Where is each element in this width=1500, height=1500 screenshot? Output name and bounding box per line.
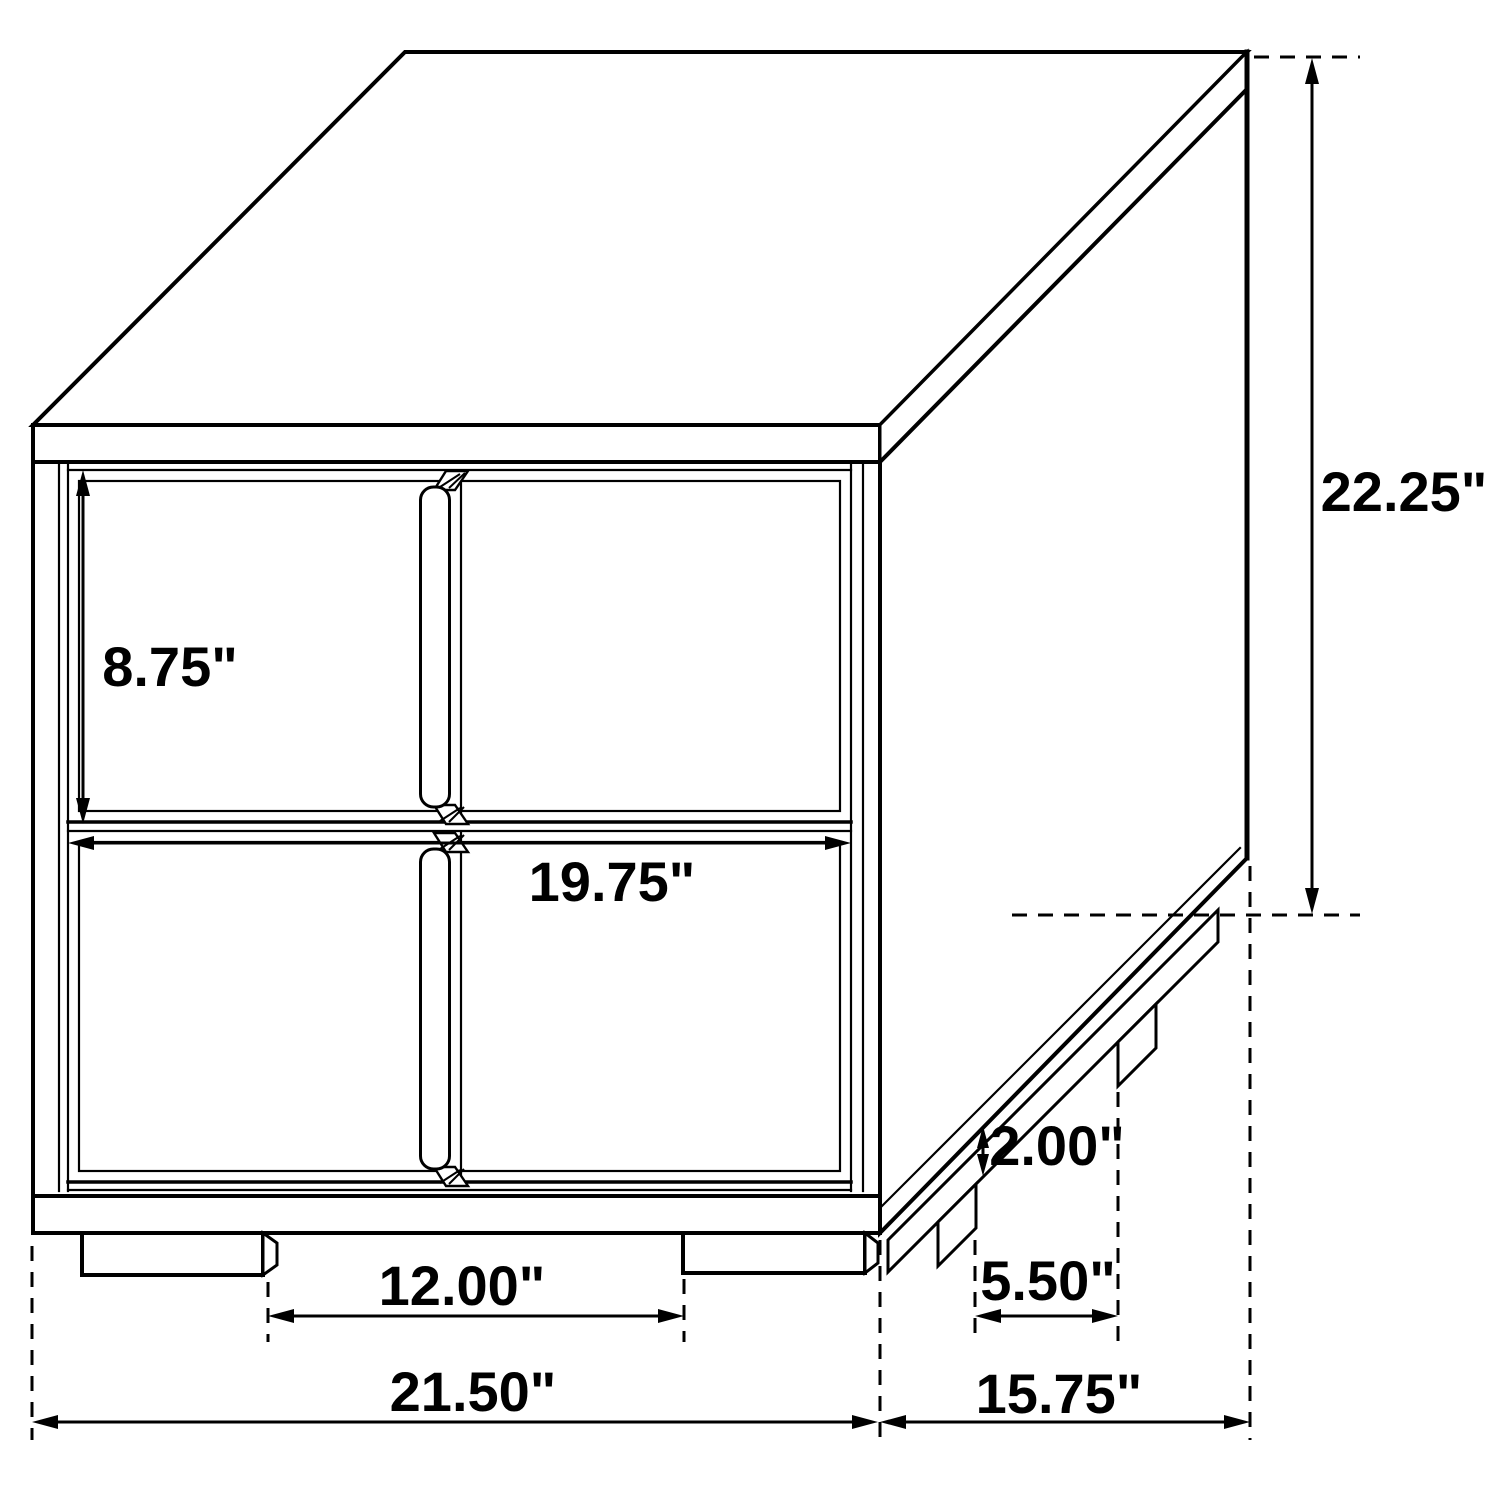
arrow-up-icon: [1305, 58, 1319, 84]
dimension-foot-height: 2.00": [977, 1114, 1125, 1177]
bottom-handle-bar: [421, 849, 450, 1169]
front-foot-left-bevel: [263, 1233, 277, 1275]
front-foot-left: [82, 1233, 263, 1275]
dim-drawer-width-label: 19.75": [529, 850, 696, 913]
arrow-left-icon: [880, 1415, 906, 1429]
front-foot-right-bevel: [865, 1233, 878, 1273]
front-plinth-band: [33, 1196, 880, 1233]
dim-foot-height-label: 2.00": [989, 1114, 1125, 1177]
front-foot-right: [683, 1233, 865, 1273]
dim-overall-depth-label: 15.75": [976, 1362, 1143, 1425]
arrow-down-icon: [1305, 888, 1319, 914]
top-panel-front-edge: [33, 425, 880, 462]
dim-side-feet-gap-label: 5.50": [980, 1249, 1116, 1312]
diagram-canvas: 8.75" 22.25" 19.75" 2.00" 5.50": [0, 0, 1500, 1500]
dim-drawer-height-label: 8.75": [102, 635, 238, 698]
dimension-front-feet-spacing: 12.00": [268, 1254, 684, 1342]
arrow-right-icon: [658, 1309, 684, 1323]
top-drawer-handle: [421, 471, 469, 824]
dim-overall-width-label: 21.50": [390, 1360, 557, 1423]
bottom-drawer-handle: [421, 833, 469, 1186]
front-face: [33, 462, 880, 1196]
front-face-frame: [33, 462, 880, 1196]
arrow-right-icon: [852, 1415, 878, 1429]
dim-overall-height-label: 22.25": [1321, 460, 1488, 523]
dim-front-feet-spacing-label: 12.00": [379, 1254, 546, 1317]
arrow-left-icon: [268, 1309, 294, 1323]
arrow-left-icon: [32, 1415, 58, 1429]
top-handle-bar: [421, 487, 450, 807]
arrow-right-icon: [1224, 1415, 1250, 1429]
nightstand-dimension-diagram: 8.75" 22.25" 19.75" 2.00" 5.50": [0, 0, 1500, 1500]
